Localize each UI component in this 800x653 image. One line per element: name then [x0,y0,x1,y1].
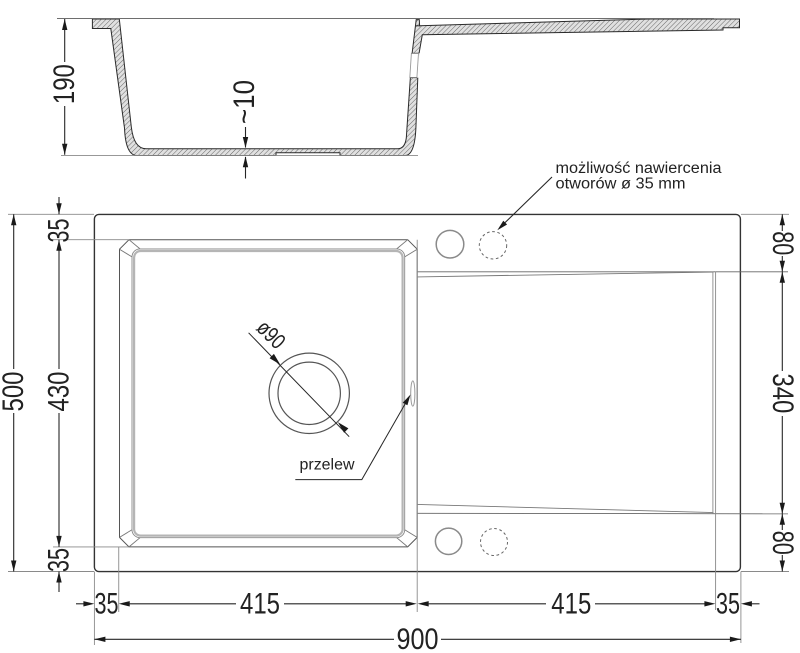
svg-text:35: 35 [43,219,76,243]
svg-text:35: 35 [95,587,119,620]
svg-text:~10: ~10 [228,80,261,124]
svg-text:500: 500 [0,372,30,412]
svg-text:możliwość nawiercenia: możliwość nawiercenia [556,160,722,177]
svg-text:otworów ø 35 mm: otworów ø 35 mm [556,176,686,193]
svg-text:415: 415 [240,587,280,620]
svg-text:przelew: przelew [300,456,356,473]
svg-text:35: 35 [43,548,76,572]
svg-text:35: 35 [716,587,740,620]
svg-text:415: 415 [551,587,591,620]
svg-text:80: 80 [766,531,799,555]
svg-text:430: 430 [43,372,76,412]
svg-text:900: 900 [397,623,439,653]
svg-text:80: 80 [766,231,799,255]
svg-text:190: 190 [48,64,81,104]
svg-text:340: 340 [766,373,799,413]
